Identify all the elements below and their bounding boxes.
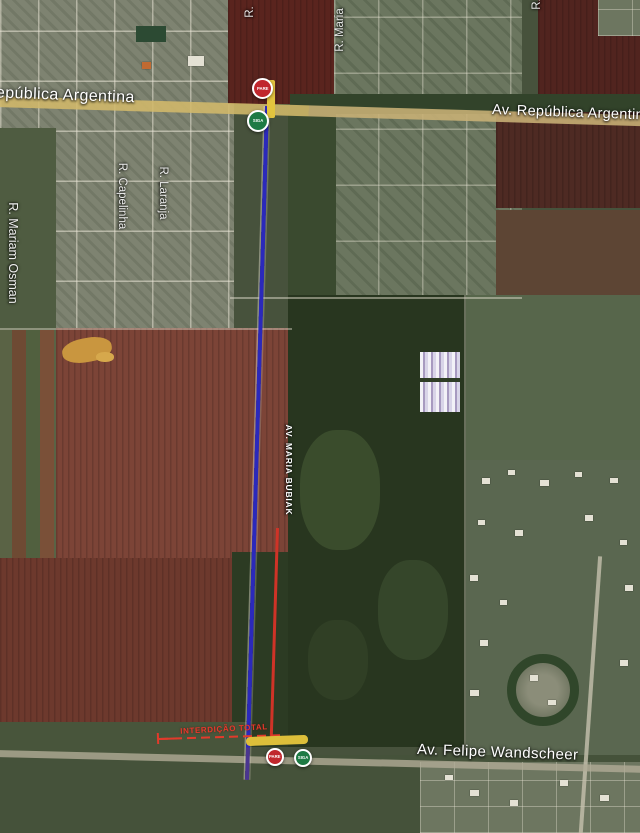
go-sign-top: SIGA xyxy=(247,110,269,132)
tree-strip-mid-left xyxy=(232,552,290,747)
building xyxy=(515,530,523,536)
road-label-maria: R. Maria xyxy=(334,8,346,51)
road-label-capelinha: R. Capelinha xyxy=(116,163,128,229)
building xyxy=(575,472,582,477)
building xyxy=(188,56,204,66)
stop-sign-top: PARE xyxy=(252,78,273,99)
road-label-partial-right: R. xyxy=(531,0,543,10)
building xyxy=(480,640,488,646)
road-line-mid xyxy=(230,297,522,299)
road-label-laranja: R. Laranja xyxy=(157,166,169,219)
road-line-east xyxy=(464,295,466,750)
building xyxy=(470,575,478,581)
building xyxy=(142,62,151,69)
urban-corner-top-right xyxy=(598,0,640,36)
green-strip-center xyxy=(288,110,336,300)
building xyxy=(625,585,633,591)
building xyxy=(610,478,618,483)
building xyxy=(500,600,507,605)
building xyxy=(620,540,627,545)
plowed-field-east-1 xyxy=(496,112,640,208)
building xyxy=(540,480,549,486)
circular-community xyxy=(507,654,579,726)
closure-end-tick xyxy=(157,733,159,744)
forest-clearing xyxy=(300,430,380,550)
quarry-patch-small xyxy=(96,352,114,362)
building xyxy=(548,700,556,705)
stop-sign-bottom: PARE xyxy=(266,748,284,766)
building xyxy=(560,780,568,786)
building xyxy=(470,690,479,696)
forest-clearing xyxy=(378,560,448,660)
rural-area-northeast xyxy=(334,0,522,298)
road-line-field-top xyxy=(0,328,292,330)
field-strips-west xyxy=(0,330,58,562)
stop-sign-label: PARE xyxy=(269,754,281,759)
field-east-2 xyxy=(496,210,640,302)
forest-clearing xyxy=(308,620,368,700)
go-sign-bottom: SIGA xyxy=(294,749,312,767)
building xyxy=(600,795,609,801)
building xyxy=(530,675,538,681)
satellite-map-canvas[interactable]: PARE SIGA PARE SIGA República Argentina … xyxy=(0,0,640,833)
sports-field xyxy=(136,26,166,42)
greenhouse-complex xyxy=(420,352,460,412)
stop-sign-label: PARE xyxy=(257,86,269,91)
fields-east xyxy=(466,295,640,463)
road-label-maria-bubiak: AV. MARIA BUBIAK xyxy=(284,425,294,516)
go-sign-label: SIGA xyxy=(253,118,263,123)
building xyxy=(508,470,515,475)
plowed-field-main-lower xyxy=(0,558,242,728)
building xyxy=(620,660,628,666)
building xyxy=(445,775,453,780)
building xyxy=(482,478,490,484)
road-label-partial-left: R. xyxy=(244,6,256,18)
building xyxy=(470,790,479,796)
building xyxy=(510,800,518,806)
building xyxy=(478,520,485,525)
go-sign-label: SIGA xyxy=(298,755,308,760)
road-label-mariam-osman: R. Mariam Osman xyxy=(6,202,20,303)
building xyxy=(585,515,593,521)
